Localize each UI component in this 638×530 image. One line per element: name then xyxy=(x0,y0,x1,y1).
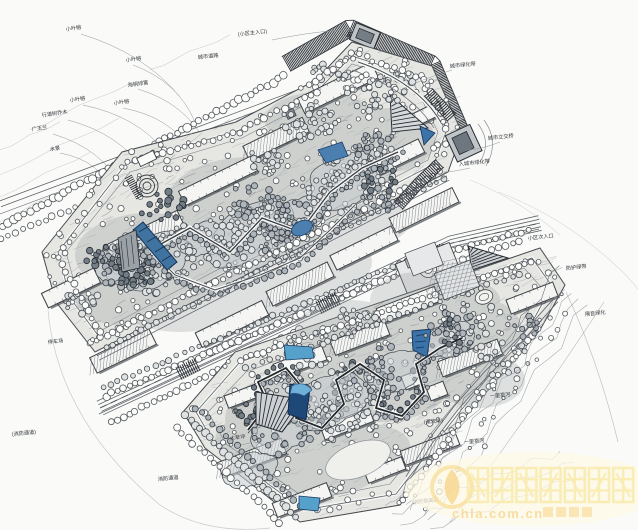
svg-text:chla.com.cn: chla.com.cn xyxy=(452,506,544,521)
